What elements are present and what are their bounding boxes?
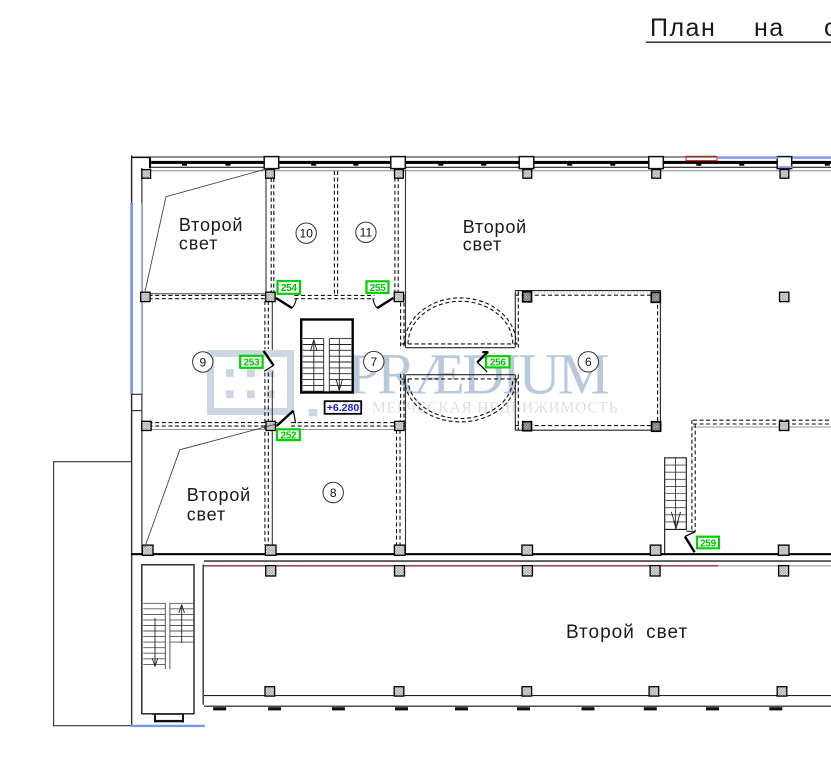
svg-text:10: 10	[300, 227, 314, 241]
svg-text:259: 259	[700, 538, 717, 549]
svg-text:свет: свет	[179, 234, 218, 254]
svg-text:свет: свет	[463, 235, 502, 255]
svg-text:Второй: Второй	[187, 485, 251, 505]
svg-text:МЕРЧЕСКАЯ НЕДВИЖИМОСТЬ: МЕРЧЕСКАЯ НЕДВИЖИМОСТЬ	[372, 400, 620, 417]
svg-text:255: 255	[370, 283, 387, 294]
svg-text:253: 253	[244, 358, 261, 369]
svg-text:254: 254	[281, 283, 298, 294]
svg-text:252: 252	[281, 431, 298, 442]
svg-text:План: План	[650, 14, 716, 42]
svg-text:о: о	[824, 14, 831, 42]
svg-text:11: 11	[360, 226, 373, 240]
svg-text:8: 8	[330, 486, 337, 500]
svg-text:9: 9	[199, 355, 206, 369]
svg-text:Второй свет: Второй свет	[566, 622, 688, 643]
svg-text:256: 256	[490, 358, 507, 369]
svg-text:6: 6	[585, 355, 592, 369]
svg-text:свет: свет	[187, 505, 226, 525]
svg-text:на: на	[754, 14, 785, 42]
svg-text:Второй: Второй	[179, 215, 243, 235]
svg-text:PRÆDIUM: PRÆDIUM	[348, 342, 610, 407]
svg-text:+6.280: +6.280	[327, 402, 360, 414]
svg-text:7: 7	[370, 355, 377, 369]
